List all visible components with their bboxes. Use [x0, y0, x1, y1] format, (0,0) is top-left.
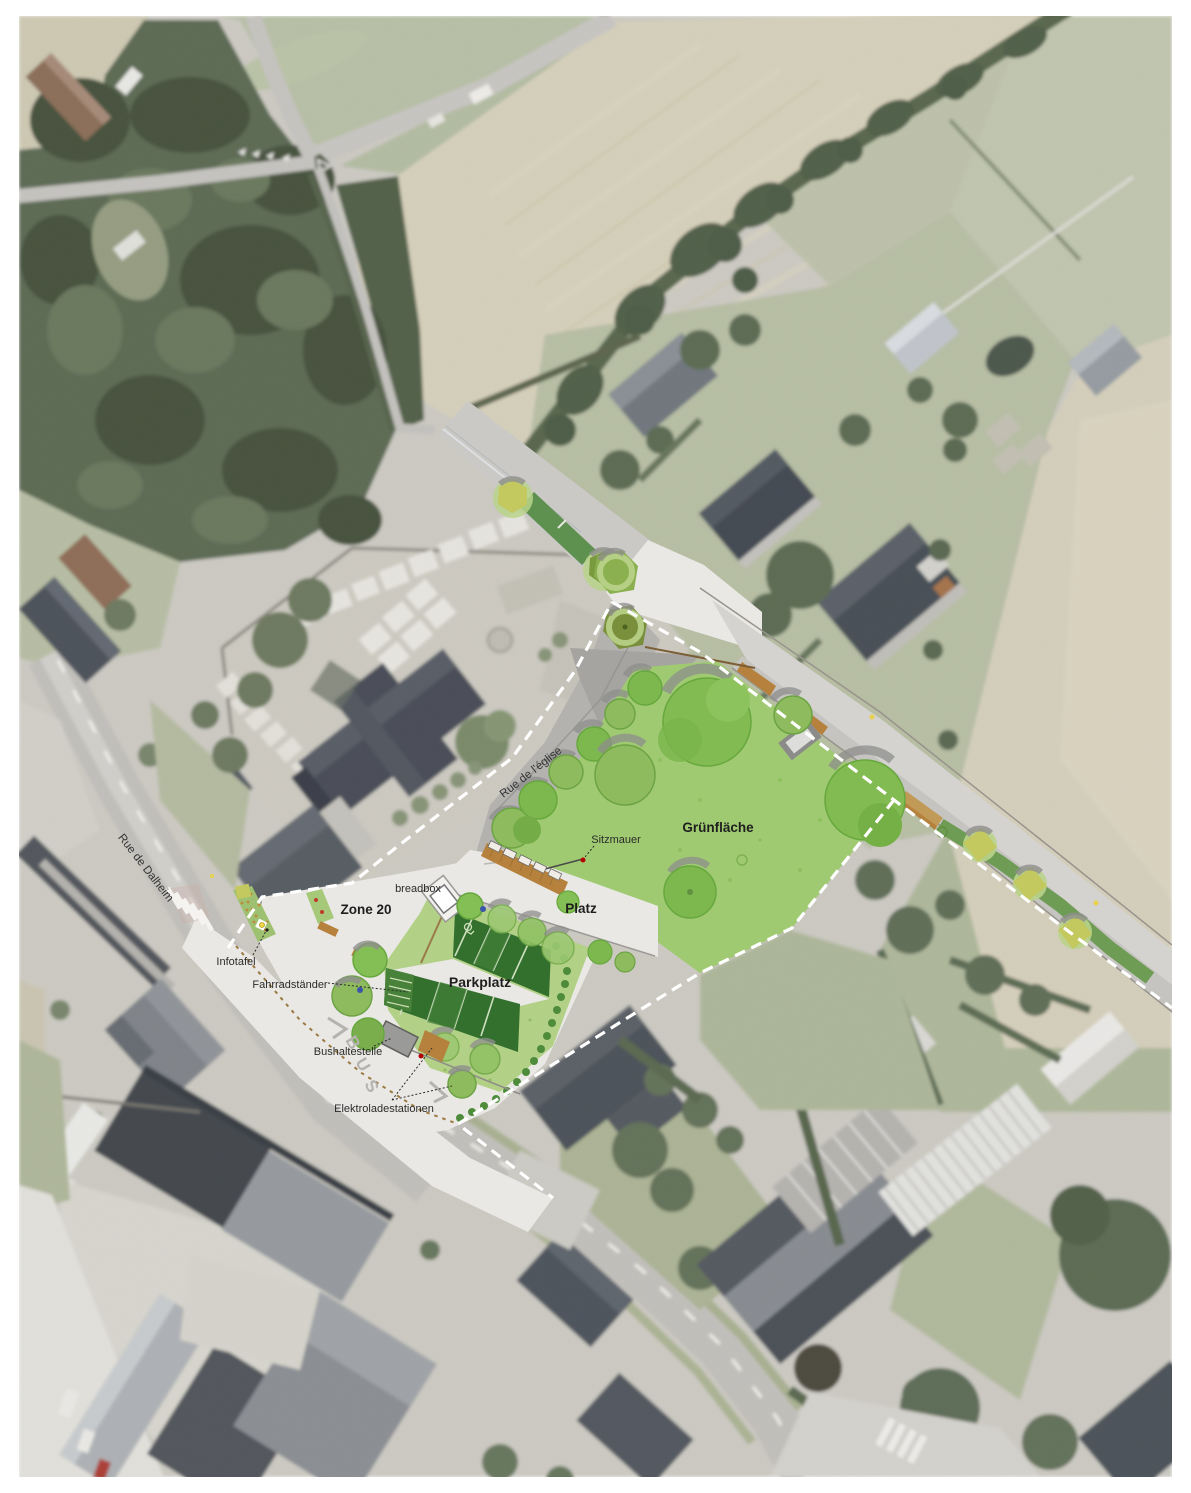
- svg-text:Platz: Platz: [565, 901, 597, 916]
- svg-text:breadbox: breadbox: [395, 883, 441, 895]
- svg-text:Zone 20: Zone 20: [340, 902, 391, 917]
- svg-text:Bushaltestelle: Bushaltestelle: [314, 1046, 383, 1058]
- svg-text:Fahrradständer: Fahrradständer: [252, 979, 328, 991]
- svg-text:Grünfläche: Grünfläche: [682, 820, 754, 835]
- svg-text:Parkplatz: Parkplatz: [449, 974, 511, 990]
- svg-text:Infotafel: Infotafel: [216, 956, 255, 968]
- svg-text:Elektroladestationen: Elektroladestationen: [334, 1103, 434, 1115]
- svg-text:Sitzmauer: Sitzmauer: [591, 834, 641, 846]
